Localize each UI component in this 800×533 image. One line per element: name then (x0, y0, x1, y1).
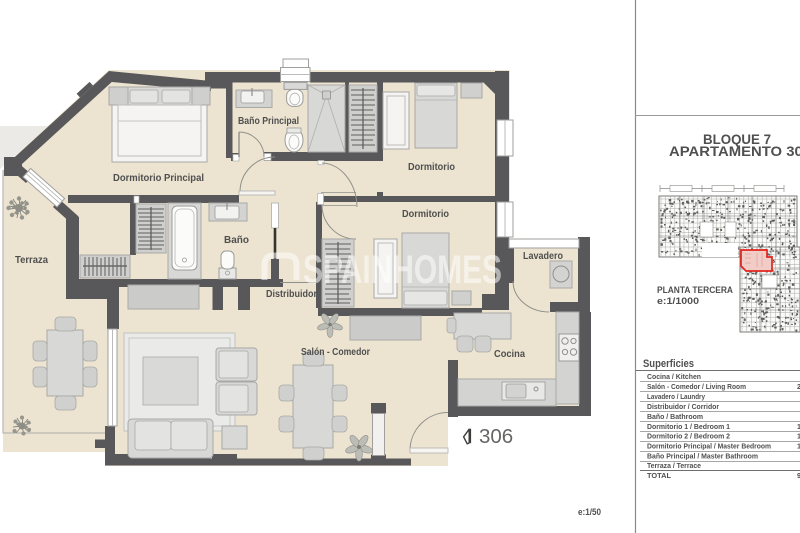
svg-text:Lavadero / Laundry: Lavadero / Laundry (647, 392, 705, 401)
svg-text:PLANTA TERCERA: PLANTA TERCERA (657, 285, 733, 296)
svg-text:Dormitorio: Dormitorio (408, 162, 455, 173)
svg-text:Salón - Comedor / Living Room: Salón - Comedor / Living Room (647, 382, 746, 391)
svg-text:TOTAL: TOTAL (647, 471, 672, 480)
svg-text:e:1/1000: e:1/1000 (657, 296, 699, 307)
svg-text:Baño / Bathroom: Baño / Bathroom (647, 412, 703, 421)
svg-text:Dormitorio 1 / Bedroom 1: Dormitorio 1 / Bedroom 1 (647, 422, 730, 431)
svg-text:Dormitorio: Dormitorio (402, 209, 449, 220)
svg-text:Dormitorio Principal: Dormitorio Principal (113, 173, 204, 184)
svg-text:Superficies: Superficies (643, 358, 694, 370)
svg-text:APARTAMENTO 306: APARTAMENTO 306 (669, 144, 800, 159)
svg-text:Baño: Baño (224, 235, 249, 246)
svg-text:Dormitorio Principal / Master: Dormitorio Principal / Master Bedroom (647, 442, 771, 451)
svg-text:Cocina / Kitchen: Cocina / Kitchen (647, 372, 701, 381)
svg-text:Baño Principal: Baño Principal (238, 116, 299, 127)
svg-text:Salón - Comedor: Salón - Comedor (301, 347, 370, 358)
svg-text:Baño Principal / Master Bathro: Baño Principal / Master Bathroom (647, 452, 758, 461)
svg-text:306: 306 (479, 425, 513, 448)
svg-text:Lavadero: Lavadero (523, 251, 563, 262)
svg-text:Distribuidor / Corridor: Distribuidor / Corridor (647, 402, 719, 411)
svg-text:Terraza: Terraza (15, 255, 48, 266)
svg-text:Cocina: Cocina (494, 349, 526, 360)
svg-text:Dormitorio 2 / Bedroom 2: Dormitorio 2 / Bedroom 2 (647, 432, 730, 441)
svg-text:e:1/50: e:1/50 (578, 507, 601, 518)
svg-text:SPAINHOMES: SPAINHOMES (303, 248, 502, 292)
svg-text:Terraza / Terrace: Terraza / Terrace (647, 461, 701, 470)
